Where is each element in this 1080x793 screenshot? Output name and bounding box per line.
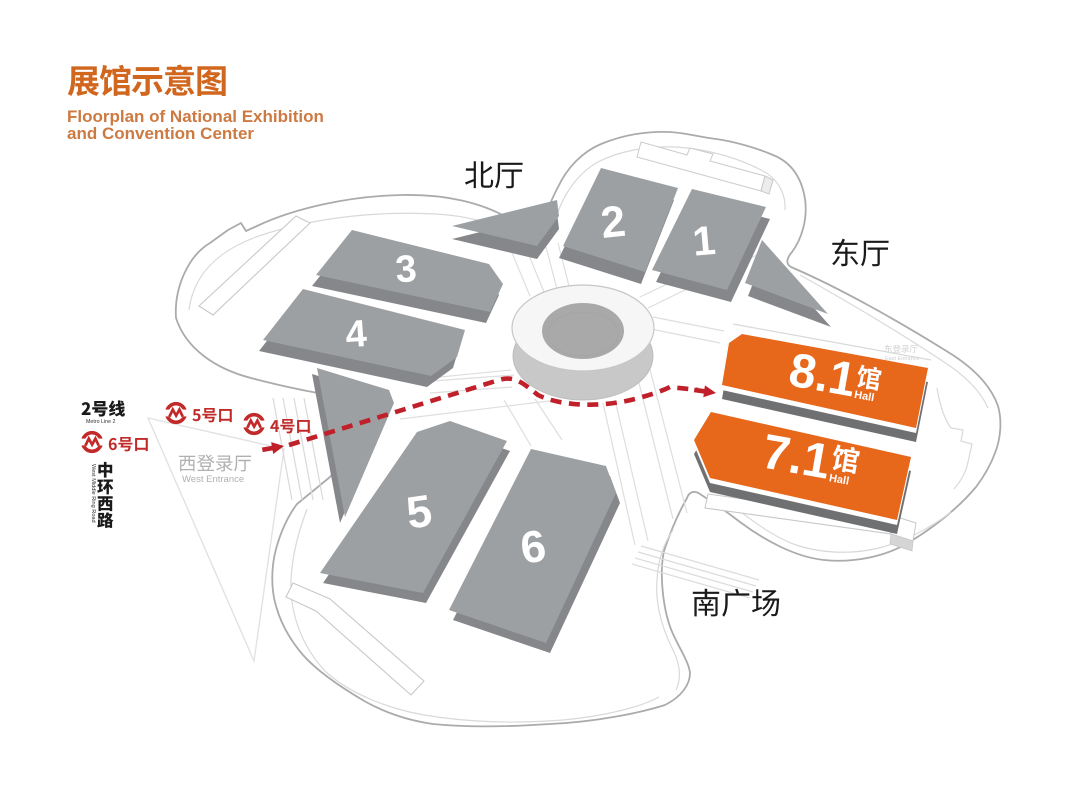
svg-text:East Entrance: East Entrance (885, 356, 920, 362)
svg-text:4: 4 (344, 313, 368, 356)
svg-text:2: 2 (598, 197, 627, 248)
svg-text:West Entrance: West Entrance (182, 474, 244, 485)
svg-text:West Middle Ring Road: West Middle Ring Road (90, 464, 96, 523)
svg-text:3: 3 (394, 248, 418, 291)
svg-text:1: 1 (691, 217, 718, 265)
svg-text:Metro Line 2: Metro Line 2 (86, 419, 115, 425)
svg-text:and Convention Center: and Convention Center (67, 124, 254, 143)
